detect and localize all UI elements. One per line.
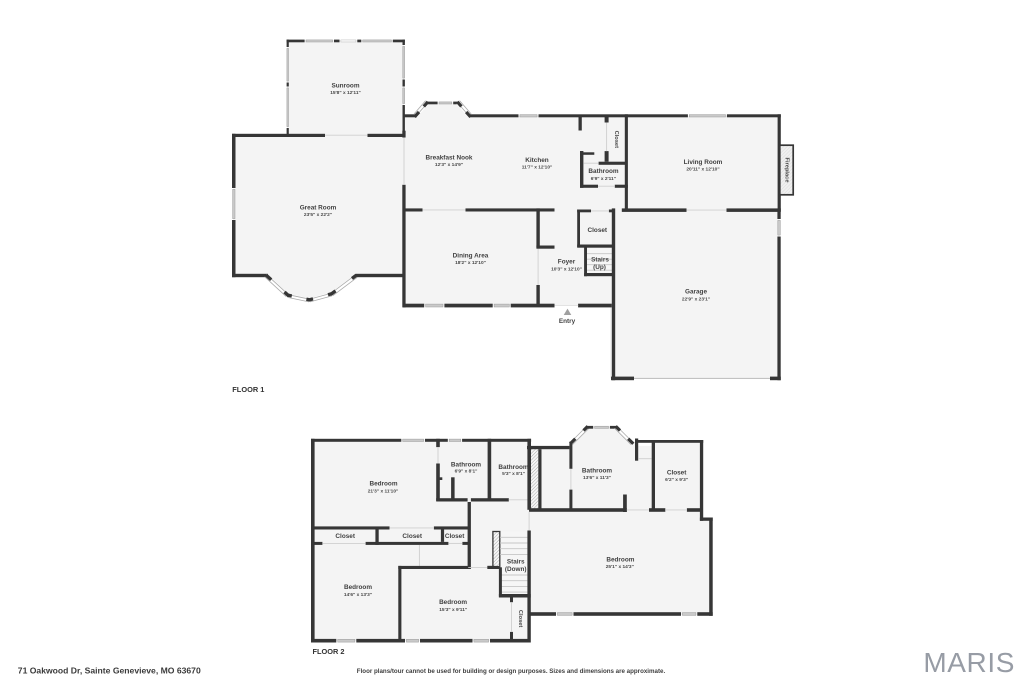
svg-text:18'2" x 12'10": 18'2" x 12'10" (455, 260, 486, 266)
svg-text:MARIS: MARIS (923, 647, 1015, 678)
svg-text:Closet: Closet (402, 533, 422, 540)
svg-text:Closet: Closet (517, 610, 523, 627)
svg-text:6'9" x 8'1": 6'9" x 8'1" (455, 469, 478, 475)
svg-text:Sunroom: Sunroom (331, 83, 359, 90)
svg-text:Bathroom: Bathroom (582, 467, 612, 474)
svg-text:Great Room: Great Room (300, 204, 337, 211)
svg-text:15'8" x 12'11": 15'8" x 12'11" (330, 90, 361, 96)
svg-text:Bathroom: Bathroom (588, 168, 618, 175)
svg-text:Closet: Closet (335, 533, 355, 540)
svg-text:Bedroom: Bedroom (369, 481, 397, 488)
svg-text:Bedroom: Bedroom (439, 599, 467, 606)
svg-text:Entry: Entry (559, 318, 576, 325)
svg-text:10'3" x 12'10": 10'3" x 12'10" (551, 266, 582, 272)
svg-text:Closet: Closet (445, 533, 465, 540)
svg-text:71 Oakwood Dr, Sainte Geneviev: 71 Oakwood Dr, Sainte Genevieve, MO 6367… (18, 666, 201, 676)
svg-text:21'3" x 11'10": 21'3" x 11'10" (368, 488, 399, 494)
svg-text:12'3" x 14'9": 12'3" x 14'9" (435, 162, 463, 168)
svg-text:Bedroom: Bedroom (606, 557, 634, 564)
svg-text:15'3" x 9'11": 15'3" x 9'11" (439, 607, 467, 613)
svg-text:Closet: Closet (667, 469, 687, 476)
svg-text:23'5" x 22'2": 23'5" x 22'2" (304, 212, 332, 218)
svg-text:20'11" x 12'10": 20'11" x 12'10" (686, 167, 719, 173)
svg-text:Floor plans/tour cannot be use: Floor plans/tour cannot be used for buil… (357, 668, 666, 675)
svg-text:Closet: Closet (588, 227, 608, 234)
svg-text:Bedroom: Bedroom (344, 584, 372, 591)
svg-text:14'6" x 13'3": 14'6" x 13'3" (344, 592, 372, 598)
svg-text:Breakfast Nook: Breakfast Nook (426, 154, 473, 161)
svg-text:11'7" x 12'10": 11'7" x 12'10" (522, 164, 553, 170)
svg-text:6'9" x 2'11": 6'9" x 2'11" (591, 176, 616, 182)
svg-text:13'6" x 11'3": 13'6" x 11'3" (583, 475, 611, 481)
svg-text:Stairs: Stairs (591, 257, 609, 264)
svg-text:Kitchen: Kitchen (525, 157, 549, 164)
svg-text:(Down): (Down) (505, 566, 527, 573)
svg-text:Bathroom: Bathroom (451, 462, 481, 469)
svg-text:6'2" x 9'3": 6'2" x 9'3" (665, 477, 688, 483)
svg-text:Dining Area: Dining Area (453, 252, 489, 259)
svg-text:FLOOR 2: FLOOR 2 (313, 647, 345, 656)
svg-text:Closet: Closet (613, 131, 619, 148)
svg-text:Living Room: Living Room (684, 159, 723, 166)
svg-text:FLOOR 1: FLOOR 1 (232, 385, 264, 394)
svg-text:Fireplace: Fireplace (783, 158, 789, 183)
svg-text:22'9" x 23'1": 22'9" x 23'1" (682, 296, 710, 302)
svg-text:5'3" x 8'1": 5'3" x 8'1" (502, 471, 525, 477)
svg-text:(Up): (Up) (593, 264, 606, 271)
svg-text:Foyer: Foyer (558, 259, 576, 266)
svg-text:Garage: Garage (685, 289, 707, 296)
svg-text:Bathroom: Bathroom (498, 464, 528, 471)
svg-text:Stairs: Stairs (507, 559, 525, 566)
svg-text:25'1" x 14'3": 25'1" x 14'3" (606, 564, 634, 570)
